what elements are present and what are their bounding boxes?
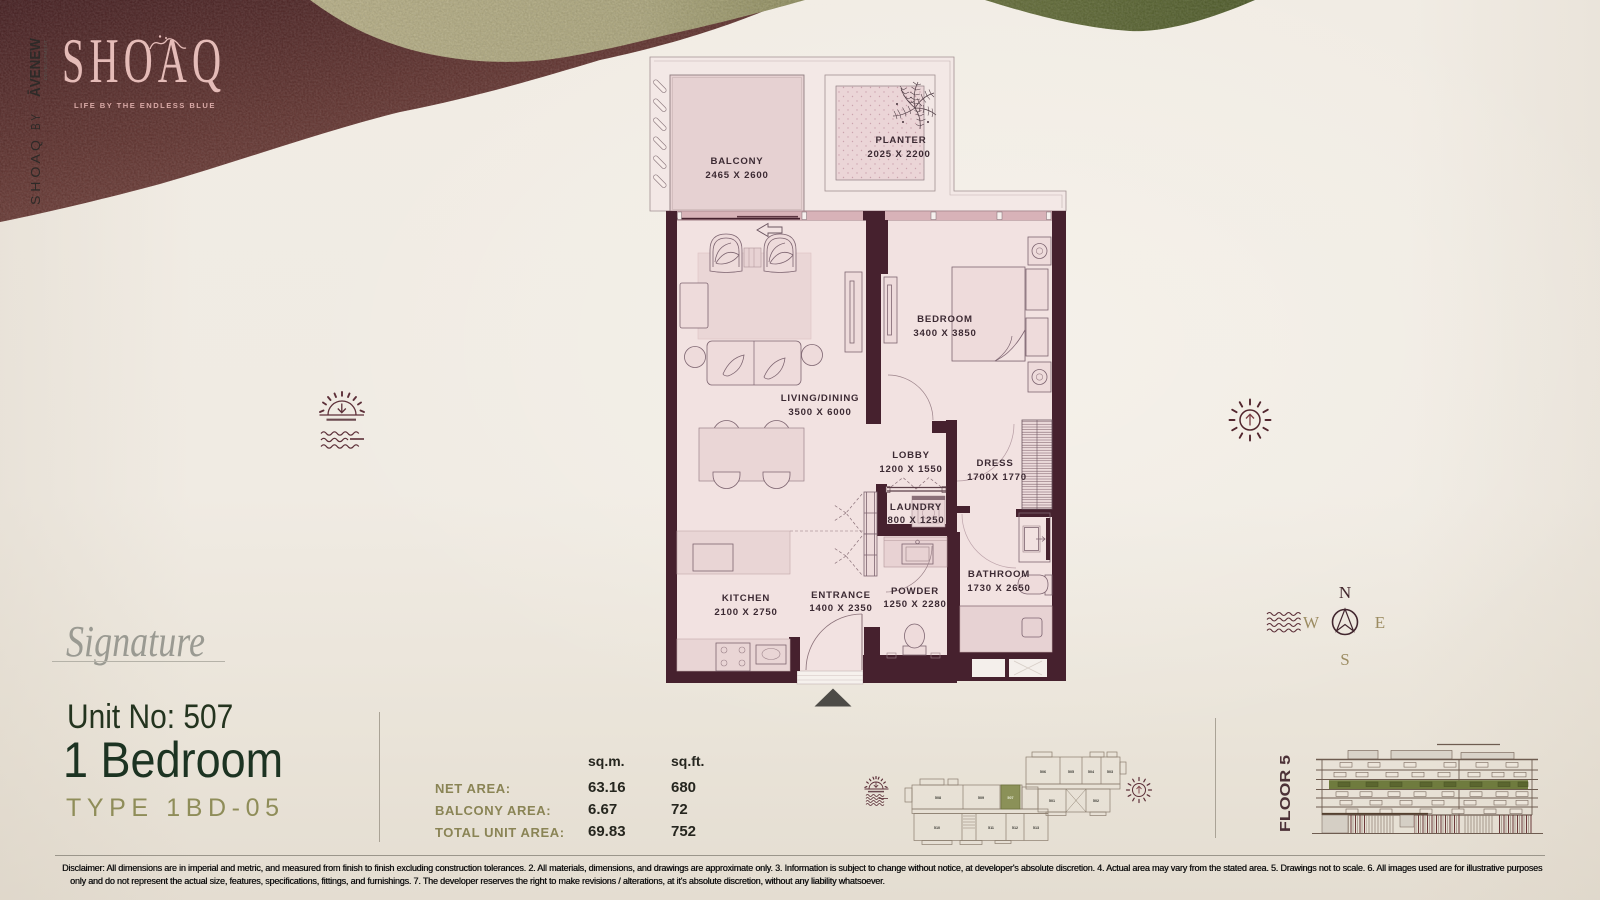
svg-text:511: 511	[988, 826, 994, 830]
svg-text:1200 X 1550: 1200 X 1550	[879, 464, 942, 475]
svg-text:510: 510	[934, 826, 940, 830]
svg-text:505: 505	[1068, 770, 1074, 774]
svg-text:507: 507	[1007, 796, 1013, 800]
svg-text:502: 502	[1093, 799, 1099, 803]
svg-text:DRESS: DRESS	[976, 458, 1013, 469]
svg-text:LOBBY: LOBBY	[892, 450, 930, 461]
svg-text:PLANTER: PLANTER	[876, 135, 927, 146]
svg-text:BATHROOM: BATHROOM	[968, 569, 1030, 580]
svg-text:2465 X 2600: 2465 X 2600	[705, 170, 768, 181]
svg-text:S H O A Q: S H O A Q	[29, 140, 43, 205]
svg-text:ĀVENEW: ĀVENEW	[27, 37, 44, 97]
svg-text:KITCHEN: KITCHEN	[722, 593, 770, 604]
svg-text:3500 X 6000: 3500 X 6000	[788, 407, 851, 418]
svg-text:512: 512	[1012, 826, 1018, 830]
svg-text:LAUNDRY: LAUNDRY	[890, 502, 942, 513]
svg-text:1730 X 2650: 1730 X 2650	[967, 583, 1030, 594]
svg-text:504: 504	[1088, 770, 1095, 774]
svg-text:509: 509	[978, 796, 984, 800]
svg-text:LIVING/DINING: LIVING/DINING	[781, 393, 860, 404]
svg-text:508: 508	[935, 796, 941, 800]
svg-text:W: W	[1303, 613, 1320, 632]
svg-text:DEVELOPMENT: DEVELOPMENT	[43, 40, 48, 80]
svg-text:BALCONY: BALCONY	[710, 156, 763, 167]
svg-text:2025 X 2200: 2025 X 2200	[867, 149, 930, 160]
svg-text:513: 513	[1033, 826, 1039, 830]
svg-text:1400 X 2350: 1400 X 2350	[809, 603, 872, 614]
svg-text:800 X 1250: 800 X 1250	[887, 515, 944, 526]
svg-text:ENTRANCE: ENTRANCE	[811, 590, 871, 601]
svg-text:BEDROOM: BEDROOM	[917, 314, 973, 325]
svg-text:2100 X 2750: 2100 X 2750	[714, 607, 777, 618]
svg-text:B Y: B Y	[29, 113, 43, 130]
svg-text:503: 503	[1107, 770, 1113, 774]
svg-text:POWDER: POWDER	[891, 586, 939, 597]
svg-text:S: S	[1340, 650, 1349, 669]
svg-text:1250 X 2280: 1250 X 2280	[883, 599, 946, 610]
svg-text:N: N	[1339, 583, 1351, 602]
svg-text:3400 X 3850: 3400 X 3850	[913, 328, 976, 339]
svg-text:501: 501	[1049, 799, 1055, 803]
svg-text:FLOOR 5: FLOOR 5	[1278, 755, 1294, 832]
svg-text:E: E	[1375, 613, 1385, 632]
svg-text:1700X 1770: 1700X 1770	[967, 472, 1027, 483]
svg-text:506: 506	[1040, 770, 1046, 774]
